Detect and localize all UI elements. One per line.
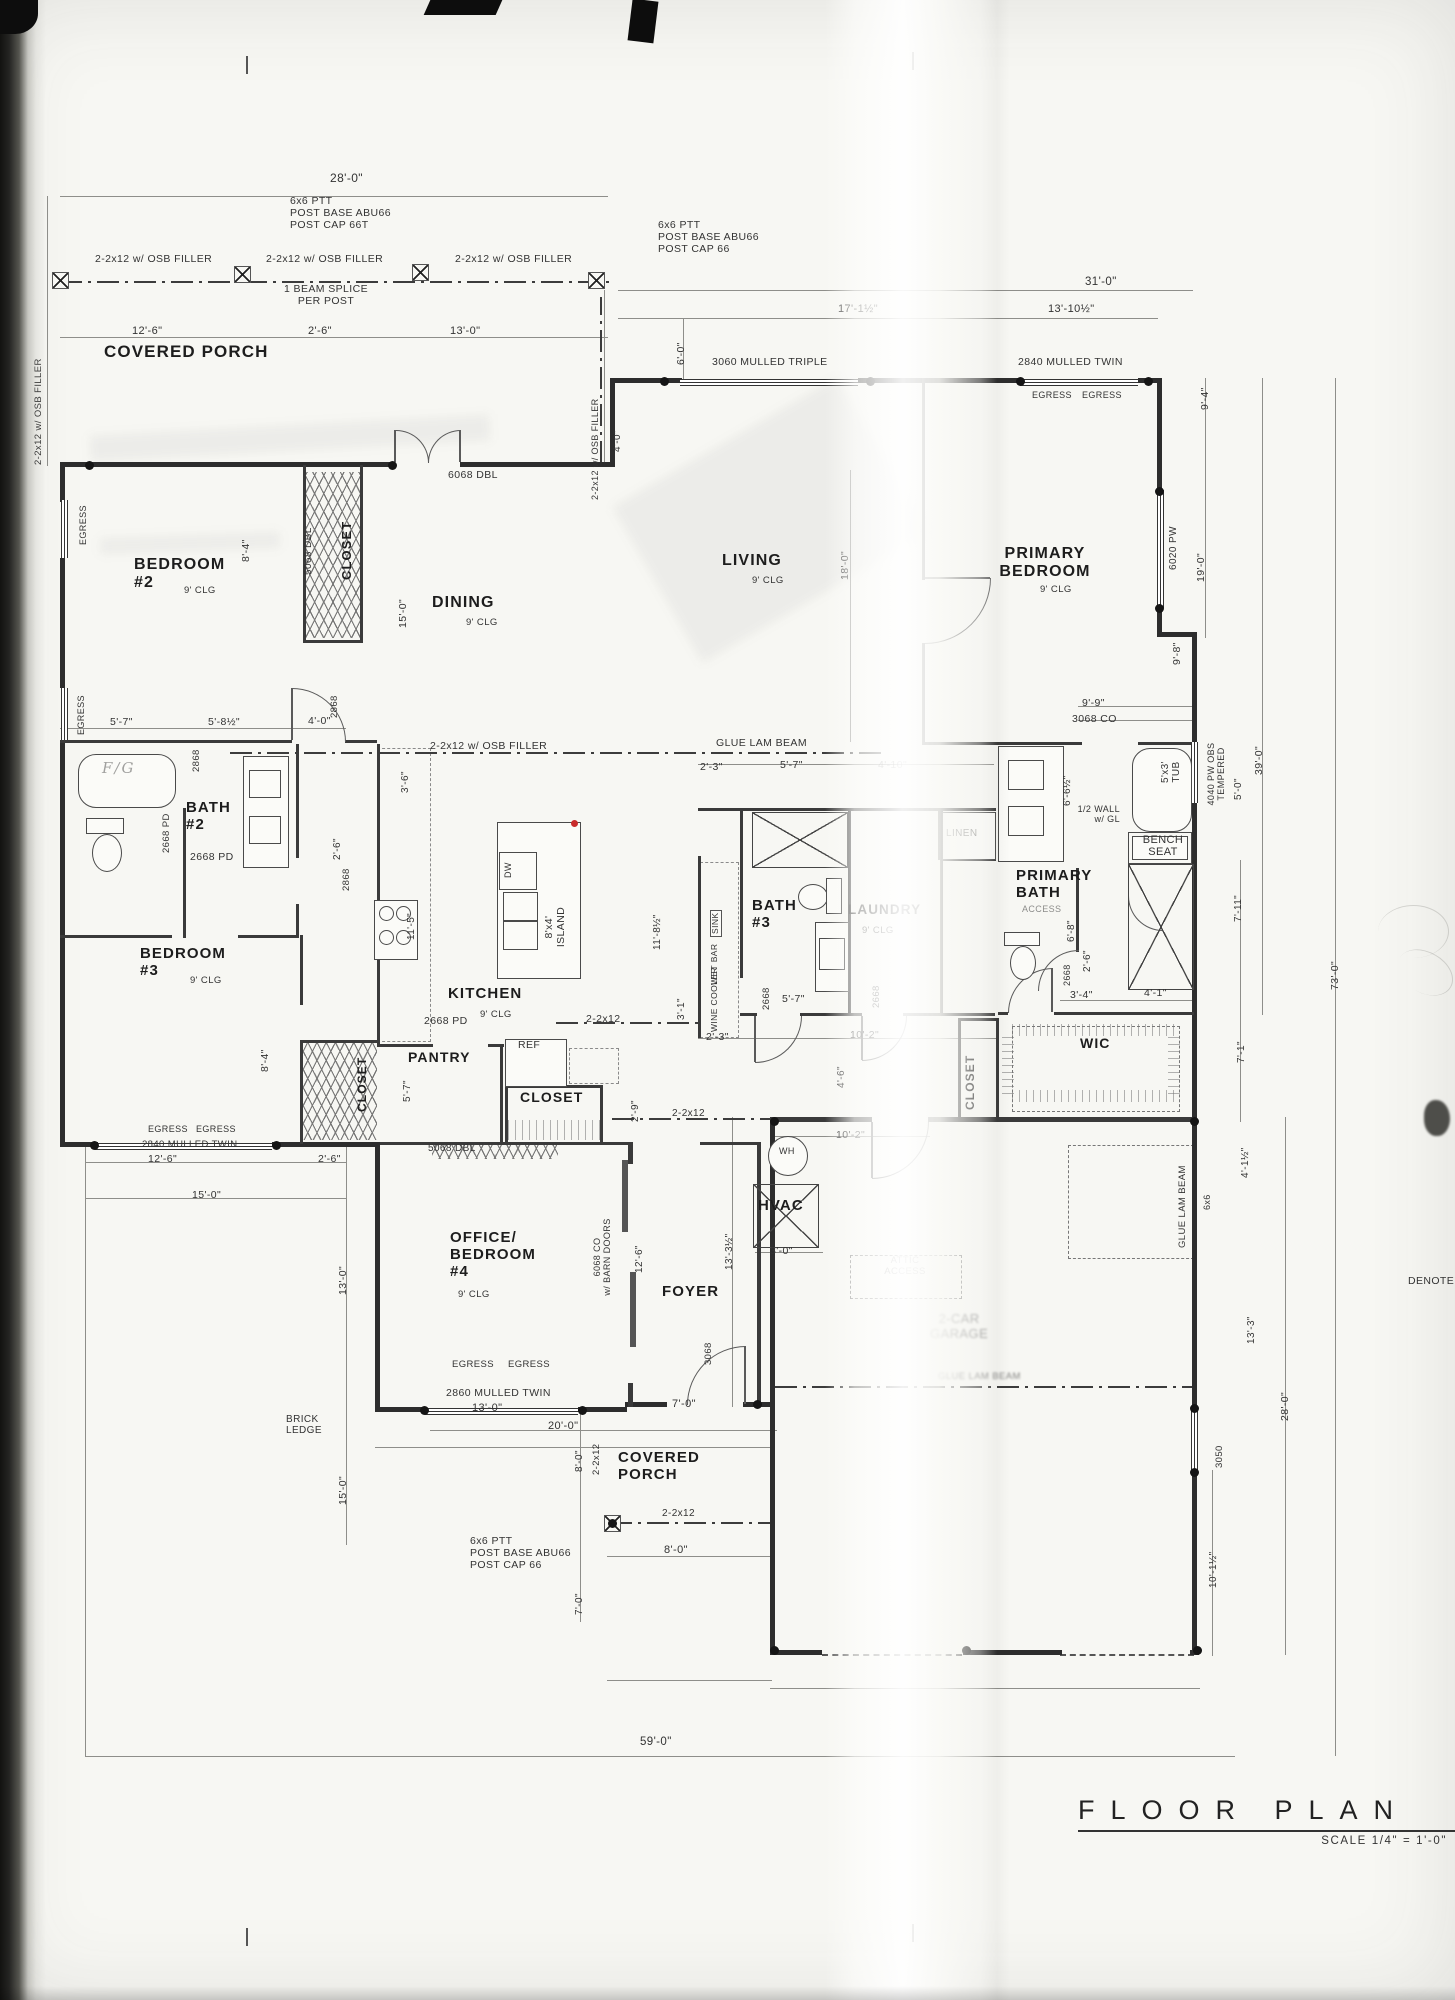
sink <box>249 770 281 798</box>
dim-12-6-barn: 12'-6" <box>634 1245 645 1273</box>
interior-wall <box>958 1018 998 1021</box>
label-living-clg: 9' CLG <box>752 576 784 587</box>
label-3068-co: 3068 CO <box>1072 714 1117 726</box>
dim-5-7-pantry: 5'-7" <box>402 1080 413 1102</box>
room-covered-porch-bottom: COVERED PORCH <box>618 1450 700 1484</box>
interior-wall <box>628 1142 633 1164</box>
room-hvac: HVAC <box>758 1198 804 1215</box>
dim-4-6-hall: 4'-6" <box>836 1066 847 1088</box>
beam-line <box>230 752 882 754</box>
label-dining-clg: 9' CLG <box>466 618 498 629</box>
window <box>61 500 68 558</box>
label-egress-1: EGRESS <box>1032 390 1072 400</box>
label-2668-pd-h: 2668 PD <box>190 852 234 864</box>
dim-13-0-left: 13'-0" <box>338 1266 350 1295</box>
column-dot <box>866 377 875 386</box>
dim-10-2-hall: 10'-2" <box>850 1030 879 1042</box>
hvac-unit <box>753 1184 819 1248</box>
interior-wall <box>922 742 1082 745</box>
counter <box>569 1048 619 1084</box>
door-leaf <box>394 430 396 462</box>
dimension-line <box>1205 378 1206 638</box>
door-leaf <box>871 1122 873 1178</box>
interior-wall <box>757 1142 761 1404</box>
label-2840-b3: 2840 MULLED TWIN <box>142 1140 237 1151</box>
interior-wall <box>740 810 743 978</box>
dim-2-6-bath: 2'-6" <box>1082 950 1093 972</box>
interior-wall <box>628 1383 633 1407</box>
interior-wall <box>938 810 941 860</box>
interior-wall <box>377 1044 433 1047</box>
registration-tick <box>246 1928 248 1946</box>
dim-15-0-dining: 15'-0" <box>398 599 410 628</box>
burner <box>379 930 394 945</box>
column-dot <box>1016 377 1025 386</box>
toilet-tank <box>1004 932 1040 946</box>
door-arc <box>687 1346 746 1405</box>
dim-28-0: 28'-0" <box>330 172 363 186</box>
wall <box>610 378 615 467</box>
toilet-tank <box>86 818 124 834</box>
dimension-line <box>698 764 994 765</box>
label-6x6: 6x6 <box>1202 1194 1212 1210</box>
sink <box>503 892 538 921</box>
floor-plan-drawing: 28'-0"6x6 PTT POST BASE ABU66 POST CAP 6… <box>0 0 1455 2000</box>
interior-wall <box>698 856 701 1038</box>
toilet-bowl <box>92 834 122 872</box>
toilet-bowl <box>798 884 828 910</box>
dim-7-1-wic: 7'-1" <box>1236 1041 1247 1063</box>
label-6020-pw: 6020 PW <box>1168 526 1179 570</box>
dimension-line <box>618 290 1193 291</box>
label-2668-pd-v: 2668 PD <box>162 813 173 853</box>
dim-5-7-bath2: 5'-7" <box>110 717 133 729</box>
column-dot <box>962 1646 971 1655</box>
dim-59-0: 59'-0" <box>640 1736 672 1749</box>
room-pantry: PANTRY <box>408 1050 471 1066</box>
dimension-line <box>1285 1117 1286 1655</box>
dim-5-8half: 5'-8½" <box>208 717 240 729</box>
toilet-bowl <box>1010 946 1036 980</box>
red-marker-dot <box>571 820 578 827</box>
room-primary-bath: PRIMARY BATH <box>1016 868 1092 902</box>
dim-9-8-right: 9'-8" <box>1172 642 1184 665</box>
dim-3068-foyer: 3068 <box>704 1342 715 1365</box>
label-kitchen-clg: 9' CLG <box>480 1010 512 1021</box>
floor-plan-scan: 28'-0"6x6 PTT POST BASE ABU66 POST CAP 6… <box>0 0 1455 2000</box>
room-foyer: FOYER <box>662 1284 719 1301</box>
dim-15-0-left: 15'-0" <box>338 1476 350 1505</box>
dimension-line <box>698 1038 996 1039</box>
dim-2668-laundry: 2668 <box>872 985 883 1008</box>
wall <box>963 1650 1062 1655</box>
note-osb-filler-1: 2-2x12 w/ OSB FILLER <box>95 254 212 266</box>
dim-2-3-a: 2'-3" <box>700 762 723 774</box>
label-6068-dbl: 6068 DBL <box>448 470 498 482</box>
garage-door-line <box>822 1654 962 1656</box>
label-linen: LINEN <box>946 828 977 839</box>
column-dot <box>578 1406 587 1415</box>
room-office: OFFICE/ BEDROOM #4 <box>450 1230 536 1281</box>
dim-19-0-right: 19'-0" <box>1196 553 1208 582</box>
room-kitchen: KITCHEN <box>448 986 522 1003</box>
barn-door-panel <box>630 1272 636 1347</box>
label-glue-lam-vert: GLUE LAM BEAM <box>1178 1165 1189 1248</box>
interior-wall <box>60 935 172 938</box>
interior-wall <box>700 1142 757 1145</box>
sink <box>819 938 845 970</box>
door-leaf <box>754 1016 756 1062</box>
note-osb-left-vert: 2-2x12 w/ OSB FILLER <box>34 358 45 465</box>
column-dot <box>85 461 94 470</box>
wall <box>60 462 65 502</box>
dimension-line <box>580 1407 581 1622</box>
door-arc <box>872 1122 929 1179</box>
wall <box>272 1142 380 1147</box>
label-3060-mulled-triple: 3060 MULLED TRIPLE <box>712 357 828 369</box>
window <box>1191 1408 1198 1470</box>
room-laundry: LAUNDRY <box>848 902 921 917</box>
label-egress-left-1: EGRESS <box>78 505 88 545</box>
wall <box>1157 378 1162 492</box>
dimension-line <box>430 1430 777 1431</box>
toilet-tank <box>826 878 842 914</box>
storage-box <box>1068 1145 1194 1259</box>
dim-13-0-office: 13'-0" <box>472 1402 502 1414</box>
label-bedroom3-clg: 9' CLG <box>190 976 222 987</box>
dim-3-0-garage: 3'-0" <box>770 1246 793 1258</box>
dim-39-0: 39'-0" <box>1254 746 1266 775</box>
dim-7-0-v: 7'-0" <box>574 1593 585 1615</box>
door-leaf <box>744 1346 746 1404</box>
sink <box>249 816 281 844</box>
label-glue-lam-beam-main: GLUE LAM BEAM <box>716 738 807 750</box>
label-3050: 3050 <box>1215 1445 1226 1468</box>
label-glue-lam-garage: GLUE LAM BEAM <box>938 1372 1021 1383</box>
interior-wall <box>505 1085 508 1145</box>
interior-wall <box>60 740 292 743</box>
shower <box>752 812 848 868</box>
column-dot <box>1155 487 1164 496</box>
door-leaf <box>459 430 461 462</box>
room-living: LIVING <box>722 552 782 570</box>
label-attic-access: ATTIC ACCESS <box>874 1256 936 1277</box>
dimension-line <box>607 1556 770 1557</box>
room-closet-foyer: CLOSET <box>520 1090 583 1106</box>
registration-tick <box>912 52 914 70</box>
dimension-line <box>604 290 605 465</box>
note-beam-splice: 1 BEAM SPLICE PER POST <box>278 284 374 308</box>
dim-20-0: 20'-0" <box>548 1420 578 1432</box>
interior-wall <box>998 1012 1008 1015</box>
label-egress-2: EGRESS <box>1082 390 1122 400</box>
label-tub-5x3: 5'x3' TUB <box>1160 744 1183 800</box>
post-symbol <box>234 266 251 283</box>
dim-17-1half: 17'-1½" <box>838 303 878 315</box>
dim-18-0-living: 18'-0" <box>840 551 852 580</box>
burner <box>379 906 394 921</box>
post-symbol <box>412 264 429 281</box>
shower <box>1128 864 1194 990</box>
label-ref: REF <box>518 1040 540 1052</box>
dim-2868-dining: 2868 <box>330 695 341 718</box>
dimension-line <box>85 1145 86 1756</box>
dim-9-4-right: 9'-4" <box>1200 387 1212 410</box>
door-leaf <box>925 577 990 579</box>
dim-2-6-hall: 2'-6" <box>332 838 343 860</box>
column-dot <box>388 461 397 470</box>
label-access: ACCESS <box>1022 904 1061 914</box>
interior-wall <box>300 1040 303 1144</box>
window <box>680 379 858 386</box>
sink <box>1008 806 1044 836</box>
registration-tick <box>912 1924 914 1942</box>
column-dot <box>272 1141 281 1150</box>
dim-7-11: 7'-11" <box>1233 895 1244 922</box>
interior-wall <box>903 1013 995 1016</box>
dim-2-3-b: 2'-3" <box>706 1032 729 1044</box>
post-symbol <box>588 272 605 289</box>
dim-7-0-porch: 7'-0" <box>672 1398 696 1410</box>
note-post-bottom: 6x6 PTT POST BASE ABU66 POST CAP 66 <box>470 1536 571 1572</box>
label-egress-left-2: EGRESS <box>76 695 86 735</box>
label-wh: WH <box>779 1146 795 1156</box>
interior-wall <box>296 904 299 938</box>
interior-wall <box>500 1044 503 1144</box>
barn-door-panel <box>622 1160 628 1232</box>
dim-8-4-b3: 8'-4" <box>260 1049 272 1072</box>
label-primary-bedroom-clg: 9' CLG <box>1040 585 1072 596</box>
title-underline <box>1078 1830 1455 1832</box>
room-garage: 2-CAR GARAGE <box>918 1312 1000 1341</box>
dim-4-1: 4'-1" <box>1144 988 1167 1000</box>
dim-8-4-b2: 8'-4" <box>241 539 253 562</box>
dim-2668-bath3: 2668 <box>762 987 773 1010</box>
note-osb-filler-mid: 2-2x12 w/ OSB FILLER <box>430 741 547 753</box>
interior-wall <box>377 744 380 1046</box>
interior-wall <box>300 1040 378 1043</box>
column-dot <box>90 1141 99 1150</box>
dim-4-10: 4'-10" <box>878 760 907 772</box>
dim-5-0-bath: 5'-0" <box>1233 778 1244 800</box>
interior-wall <box>600 1085 603 1145</box>
column-dot <box>1190 1404 1199 1413</box>
note-post-top-right: 6x6 PTT POST BASE ABU66 POST CAP 66 <box>658 220 759 256</box>
column-dot <box>1155 604 1164 613</box>
note-osb-filler-3: 2-2x12 w/ OSB FILLER <box>455 254 572 266</box>
interior-wall <box>300 935 303 1005</box>
column-dot <box>420 1406 429 1415</box>
door-leaf <box>291 688 293 740</box>
door-arc <box>755 1016 802 1063</box>
note-half-wall: 1/2 WALL w/ GL <box>1074 804 1120 824</box>
label-bench-seat: BENCH SEAT <box>1134 834 1192 859</box>
interior-wall <box>958 1018 961 1118</box>
dim-6-0-top: 6'-0" <box>676 342 688 365</box>
room-covered-porch-top: COVERED PORCH <box>104 342 269 361</box>
label-5068-dbl-b2: 5068 DBL <box>303 527 314 575</box>
label-egress-office-2: EGRESS <box>508 1360 550 1371</box>
label-2840-mulled-twin: 2840 MULLED TWIN <box>1018 357 1123 369</box>
dim-porch-12-6: 12'-6" <box>132 325 162 337</box>
room-closet-hall: CLOSET <box>964 1055 978 1110</box>
dim-13-10half: 13'-10½" <box>1048 303 1095 315</box>
label-egress-b3-1: EGRESS <box>148 1124 188 1134</box>
drawing-title: FLOOR PLAN <box>1078 1795 1455 1826</box>
beam-line <box>775 1386 1193 1388</box>
dim-2868-hall-a: 2868 <box>192 749 203 772</box>
label-2-2x12-v: 2-2x12 <box>592 1444 603 1475</box>
sink <box>1008 760 1044 790</box>
interior-wall <box>922 643 925 744</box>
dim-11-8half: 11'-8½" <box>652 914 663 950</box>
dimension-line <box>770 1688 1200 1689</box>
dimension-line <box>1335 378 1336 1756</box>
dimension-line <box>85 1162 347 1163</box>
wall <box>375 1142 380 1412</box>
ink-blob-artifact <box>1424 1100 1450 1136</box>
interior-wall <box>303 640 363 643</box>
label-4040-pw: 4040 PW OBS TEMPERED <box>1206 740 1226 808</box>
interior-wall <box>996 1018 999 1118</box>
wall <box>60 462 395 467</box>
dim-2668-primary: 2668 <box>1062 964 1072 986</box>
note-osb-vert-mid: 2-2x12 w/ OSB FILLER <box>590 398 600 500</box>
column-dot <box>770 1117 779 1126</box>
closet-rod <box>508 1120 600 1140</box>
dim-4-1half-right: 4'-1½" <box>1240 1147 1251 1178</box>
column-dot <box>770 1646 779 1655</box>
column-dot <box>608 1519 617 1528</box>
dim-10-2-garage: 10'-2" <box>836 1130 865 1142</box>
dim-5-7-hall: 5'-7" <box>782 994 805 1006</box>
dim-3-1: 3'-1" <box>676 998 687 1020</box>
interior-wall <box>800 1013 862 1016</box>
dim-31-0: 31'-0" <box>1085 276 1117 289</box>
label-office-clg: 9' CLG <box>458 1290 490 1301</box>
beam-line <box>556 1022 702 1024</box>
interior-wall <box>1054 1012 1194 1015</box>
wall <box>60 740 65 1147</box>
garage-door-line <box>1060 1654 1194 1656</box>
dim-3-6-hall: 3'-6" <box>400 771 411 793</box>
dim-6-6half: 6'-6½" <box>1062 775 1073 806</box>
dim-6-8: 6'-8" <box>1066 920 1077 942</box>
interior-wall <box>296 744 299 858</box>
dimension-line <box>1240 1015 1241 1120</box>
interior-wall <box>360 465 363 642</box>
room-primary-bedroom: PRIMARY BEDROOM <box>990 545 1100 581</box>
label-2-2x12-c: 2-2x12 <box>672 1108 705 1119</box>
dim-2-6-bottom: 2'-6" <box>318 1154 341 1166</box>
dim-12-6-bottom: 12'-6" <box>148 1154 177 1166</box>
interior-wall <box>238 935 298 938</box>
dimension-line <box>47 196 48 466</box>
room-closet-b2: CLOSET <box>340 521 355 580</box>
dim-13-3half: 13'-3½" <box>724 1233 735 1270</box>
label-6068-barn: 6068 CO w/ BARN DOORS <box>592 1209 612 1305</box>
column-dot <box>1144 377 1153 386</box>
interior-wall <box>770 1117 872 1122</box>
dimension-line <box>618 318 1158 319</box>
note-osb-filler-2: 2-2x12 w/ OSB FILLER <box>266 254 383 266</box>
door-leaf <box>1051 968 1053 1012</box>
label-2668-pd-kitchen: 2668 PD <box>424 1016 468 1028</box>
dim-8-0-porch: 8'-0" <box>664 1544 688 1556</box>
door-arc <box>925 578 991 644</box>
column-dot <box>753 1400 762 1409</box>
room-dining: DINING <box>432 594 495 612</box>
label-2-2x12-kitchen: 2-2x12 <box>586 1014 621 1026</box>
column-dot <box>1190 1468 1199 1477</box>
dim-2-9: 2'-9" <box>630 1100 641 1122</box>
dim-13-3-right: 13'-3" <box>1246 1316 1257 1344</box>
label-2860-office: 2860 MULLED TWIN <box>446 1388 551 1400</box>
label-wine-cooler: WINE COOLER <box>710 967 720 1032</box>
label-dw: DW <box>503 862 513 878</box>
dim-15-0-bottom: 15'-0" <box>192 1190 221 1202</box>
wall <box>610 378 682 383</box>
dim-11-5: 11'-5" <box>406 913 417 940</box>
beam-line <box>610 1522 772 1524</box>
dim-73-0: 73'-0" <box>1330 961 1342 990</box>
wall <box>1192 1470 1197 1655</box>
dim-9-9: 9'-9" <box>1082 698 1105 710</box>
label-denote: DENOTE <box>1408 1276 1454 1288</box>
note-brick-ledge: BRICK LEDGE <box>286 1414 322 1437</box>
label-egress-b3-2: EGRESS <box>196 1124 236 1134</box>
label-5068-dbl-closet: 5068 DBL <box>428 1143 476 1154</box>
wall <box>60 558 65 688</box>
dim-2868-hall-b: 2868 <box>342 868 353 891</box>
dimension-line <box>607 1680 772 1681</box>
label-laundry-clg: 9' CLG <box>862 926 894 937</box>
label-fg-handwritten: F/G <box>102 760 135 777</box>
dimension-line <box>1262 378 1263 1015</box>
scan-top-mark-2 <box>628 0 659 43</box>
label-island: 8'x4' ISLAND <box>544 886 568 968</box>
title-block: FLOOR PLAN SCALE 1/4" = 1'-0" <box>1078 1795 1455 1847</box>
dim-5-7-bath3: 5'-7" <box>780 760 803 772</box>
registration-tick <box>246 56 248 74</box>
scan-shadow <box>0 1986 1455 2000</box>
wall <box>1157 632 1197 637</box>
window <box>1157 490 1164 608</box>
label-egress-office-1: EGRESS <box>452 1360 494 1371</box>
room-wic: WIC <box>1080 1036 1111 1052</box>
dim-10-1half: 10'-1½" <box>1208 1551 1219 1588</box>
window <box>1191 742 1198 803</box>
column-dot <box>1190 1117 1199 1126</box>
dim-4-0-jog: 4'-0" <box>612 430 623 452</box>
dim-3-4: 3'-4" <box>1070 990 1093 1002</box>
dimension-line <box>85 1756 1235 1757</box>
window <box>1020 379 1138 386</box>
room-bath-3: BATH #3 <box>752 898 797 932</box>
dim-porch-13-0: 13'-0" <box>450 325 480 337</box>
post-symbol <box>52 272 69 289</box>
wall <box>858 378 1022 383</box>
room-bath-2: BATH #2 <box>186 800 231 834</box>
dim-8-0-v: 8'-0" <box>574 1450 585 1472</box>
drawing-scale: SCALE 1/4" = 1'-0" <box>1078 1835 1455 1847</box>
wall <box>1192 632 1197 744</box>
sink <box>503 921 538 950</box>
dim-porch-2-6: 2'-6" <box>308 325 332 337</box>
interior-wall <box>922 378 925 580</box>
room-closet-b3: CLOSET <box>356 1057 370 1112</box>
note-post-top-left: 6x6 PTT POST BASE ABU66 POST CAP 66T <box>290 196 391 232</box>
